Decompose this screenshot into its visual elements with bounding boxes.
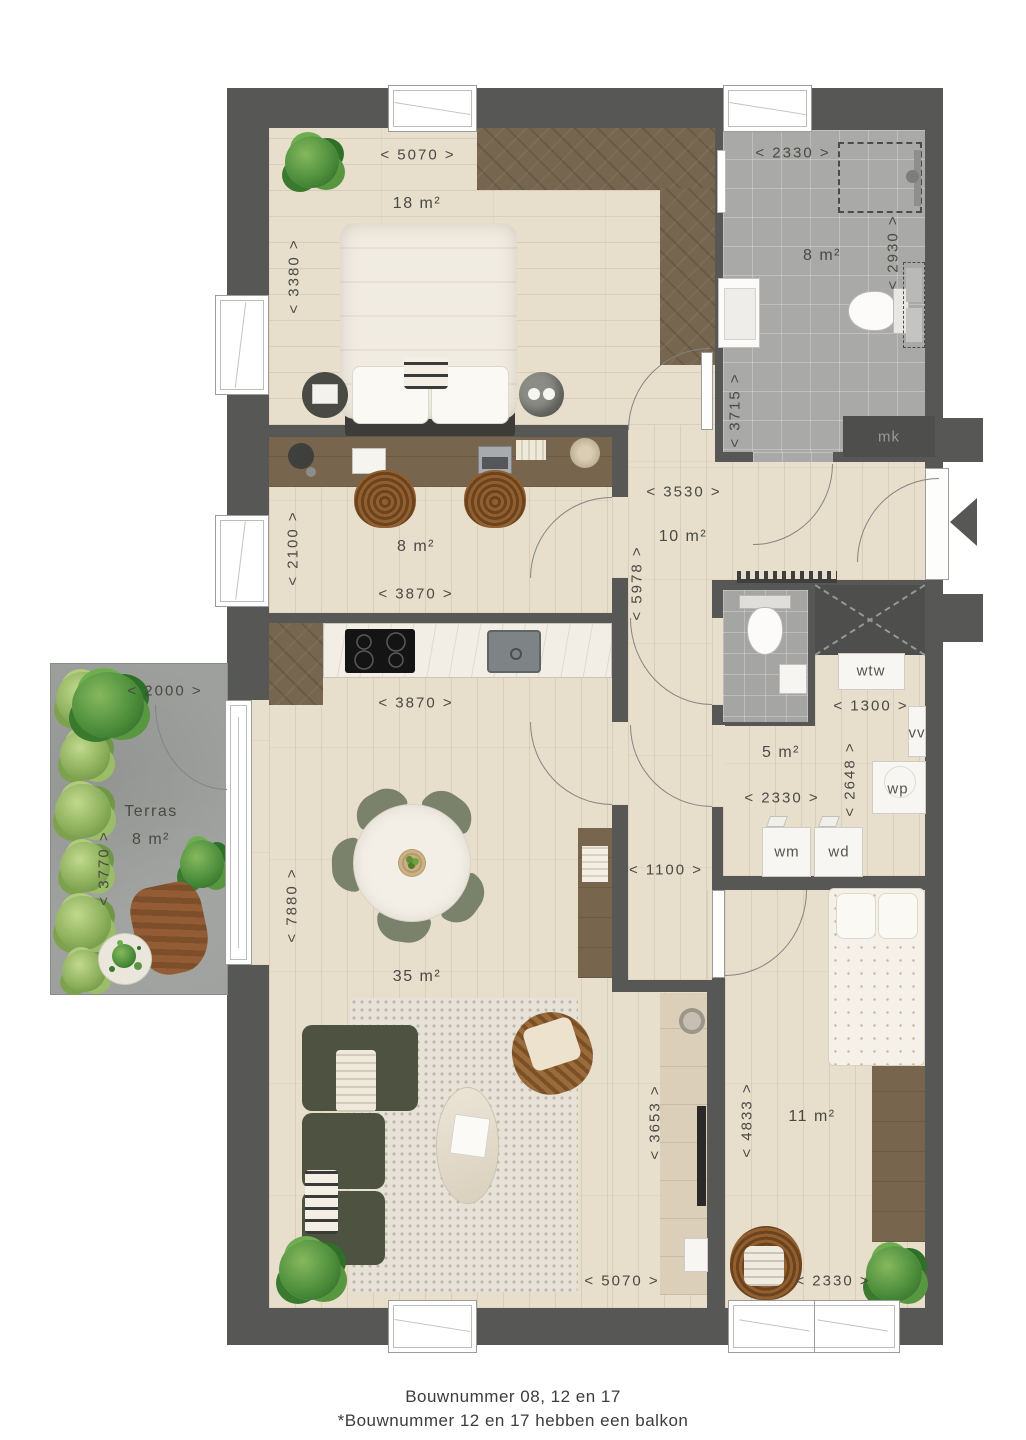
cooktop xyxy=(345,629,415,673)
bathroom-door-opening xyxy=(753,452,833,462)
desk-hat xyxy=(570,438,600,468)
wp-label: wp xyxy=(887,782,908,797)
dim-2000: < 2000 > xyxy=(127,684,202,699)
desk-book-stack xyxy=(516,440,546,460)
dim-5070-top: < 5070 > xyxy=(380,148,455,163)
niche-shelf xyxy=(906,268,922,302)
bedside-lamp-bulbs xyxy=(528,388,540,400)
dim-4833: < 4833 > xyxy=(740,1082,755,1157)
dim-2100: < 2100 > xyxy=(286,510,301,585)
centerpiece-plant xyxy=(406,856,413,863)
niche-shelf xyxy=(906,308,922,342)
dim-3870-study: < 3870 > xyxy=(378,587,453,602)
caption-line-1: Bouwnummer 08, 12 en 17 xyxy=(0,1385,1026,1409)
terrace-area-label: 8 m² xyxy=(132,832,170,848)
dim-3653: < 3653 > xyxy=(648,1084,663,1159)
bedroom1-wardrobe-top xyxy=(477,128,715,190)
bed1-accent-pillow xyxy=(404,357,448,389)
entrance-wall-bump-bottom xyxy=(943,594,983,642)
dim-3715: < 3715 > xyxy=(728,372,743,447)
hall-area-label: 10 m² xyxy=(659,529,707,545)
terrace-door-opening xyxy=(250,700,269,965)
living-window xyxy=(388,1300,477,1353)
bedroom2-plant xyxy=(866,1246,922,1302)
study-door-opening xyxy=(612,497,628,578)
vv-label: vv xyxy=(909,726,926,741)
dim-1300: < 1300 > xyxy=(833,699,908,714)
bedroom2-window xyxy=(728,1300,900,1353)
bathroom-window xyxy=(723,85,812,132)
decor-box xyxy=(684,1238,708,1272)
bedroom1-side-window xyxy=(215,295,269,395)
dim-2930: < 2930 > xyxy=(886,214,901,289)
terrace-sliding-door xyxy=(225,700,252,965)
bedroom1-area-label: 18 m² xyxy=(393,196,441,212)
study-window xyxy=(215,515,269,607)
sideboard-books xyxy=(582,846,608,882)
bedroom2-chair-cushion xyxy=(744,1246,784,1286)
bedroom2-door-leaf xyxy=(712,890,725,978)
wm-label: wm xyxy=(774,845,799,860)
wc-door-opening xyxy=(712,618,723,705)
dim-3870-kitchen: < 3870 > xyxy=(378,696,453,711)
dim-3380: < 3380 > xyxy=(287,238,302,313)
speaker xyxy=(679,1008,705,1034)
dining-centerpiece xyxy=(398,849,426,877)
bedroom1-door-leaf xyxy=(701,352,713,430)
bedroom1-wardrobe-side xyxy=(660,188,715,365)
caption-line-2: *Bouwnummer 12 en 17 hebben een balkon xyxy=(0,1409,1026,1433)
desk-lamp xyxy=(288,443,314,469)
study-chair-right xyxy=(464,470,526,528)
dim-2648: < 2648 > xyxy=(843,741,858,816)
wc-sink xyxy=(779,664,807,694)
terrace-table-plant xyxy=(112,944,136,968)
bed2-pillow-left xyxy=(836,893,876,939)
dim-2330-bed2: < 2330 > xyxy=(795,1274,870,1289)
wtw-label: wtw xyxy=(857,664,886,679)
bedroom2-wardrobe xyxy=(872,1066,925,1242)
study-area-label: 8 m² xyxy=(397,539,435,555)
entrance-wall-bump-top xyxy=(943,418,983,462)
study-desk xyxy=(269,437,612,487)
terrace-potted-plant xyxy=(180,840,224,888)
dim-3530: < 3530 > xyxy=(646,485,721,500)
bedroom2-area-label: 11 m² xyxy=(788,1109,835,1125)
bedside-lamp xyxy=(519,372,564,417)
kitchen-corner-cabinet xyxy=(269,623,323,705)
dim-3770: < 3770 > xyxy=(97,830,112,905)
living-door-opening xyxy=(612,722,628,805)
tech-door-opening xyxy=(712,725,725,807)
dim-5978: < 5978 > xyxy=(630,545,645,620)
study-chair-left xyxy=(354,470,416,528)
nightstand-book xyxy=(312,384,338,404)
dim-7880: < 7880 > xyxy=(285,867,300,942)
bed2-pillow-right xyxy=(878,893,918,939)
mk-label: mk xyxy=(878,430,900,445)
entrance-arrow xyxy=(950,498,977,546)
shower-head xyxy=(906,170,919,183)
dim-2330-tech: < 2330 > xyxy=(744,791,819,806)
floor-plan: < 5070 > < 3380 > < 2330 > < 2930 > < 37… xyxy=(0,0,1026,1440)
dim-5070-bottom: < 5070 > xyxy=(584,1274,659,1289)
technical-area-label: 5 m² xyxy=(762,745,800,761)
sofa-pillow xyxy=(305,1170,338,1234)
living-plant xyxy=(279,1240,341,1300)
bedroom1-plant xyxy=(285,136,339,188)
wc-toilet-bowl xyxy=(747,607,783,655)
bathroom-sink-basin xyxy=(724,288,756,340)
coffee-table-magazine xyxy=(449,1114,490,1159)
living-area-label: 35 m² xyxy=(393,969,441,985)
bathroom-area-label: 8 m² xyxy=(803,248,841,264)
tv xyxy=(697,1106,706,1206)
dim-1100: < 1100 > xyxy=(629,863,703,878)
shower-glass-panel xyxy=(717,150,726,213)
bedroom1-window xyxy=(388,85,477,132)
terrace-name-label: Terras xyxy=(124,804,177,820)
hall-floor-doorway xyxy=(628,425,715,462)
dim-2330-bath: < 2330 > xyxy=(755,146,830,161)
wd-label: wd xyxy=(828,845,849,860)
sofa-throw xyxy=(336,1050,376,1112)
kitchen-sink xyxy=(487,630,541,673)
toilet-bowl xyxy=(848,291,896,331)
doormat xyxy=(737,571,837,583)
